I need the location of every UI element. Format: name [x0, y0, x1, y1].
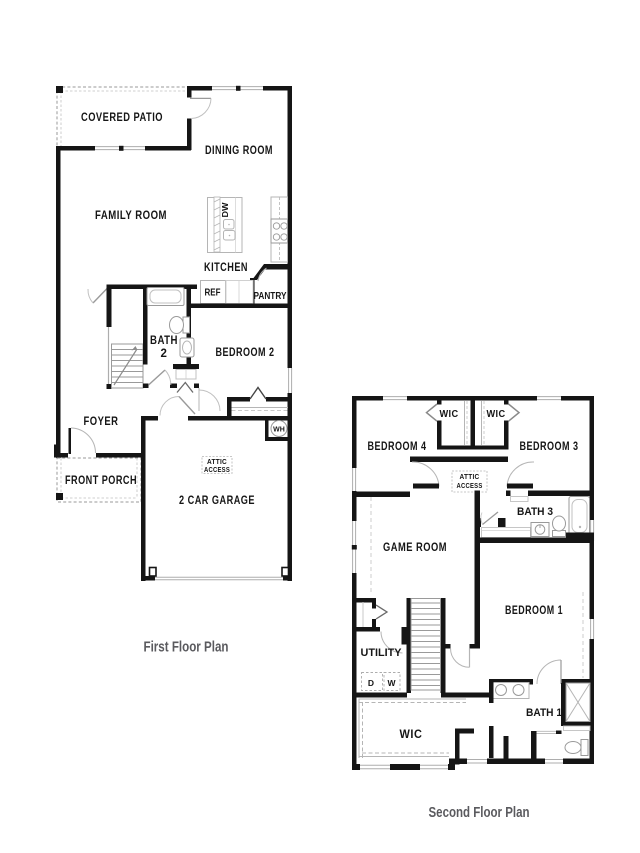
svg-text:DW: DW	[220, 201, 230, 217]
svg-text:PANTRY: PANTRY	[254, 290, 287, 302]
svg-text:WIC: WIC	[440, 409, 459, 420]
svg-text:BATH 3: BATH 3	[517, 506, 553, 518]
svg-text:GAME ROOM: GAME ROOM	[383, 542, 447, 554]
svg-text:ACCESS: ACCESS	[204, 465, 230, 474]
svg-text:BATH: BATH	[150, 335, 178, 347]
svg-text:2: 2	[161, 348, 168, 360]
svg-text:FOYER: FOYER	[84, 416, 119, 428]
svg-text:UTILITY: UTILITY	[361, 647, 403, 659]
svg-text:WIC: WIC	[400, 729, 423, 741]
svg-text:KITCHEN: KITCHEN	[204, 262, 248, 274]
svg-text:FAMILY ROOM: FAMILY ROOM	[95, 210, 167, 222]
svg-text:BEDROOM 4: BEDROOM 4	[368, 441, 427, 453]
svg-text:WIC: WIC	[487, 409, 506, 420]
svg-text:BEDROOM 1: BEDROOM 1	[505, 605, 563, 617]
svg-text:ACCESS: ACCESS	[457, 481, 483, 490]
svg-text:DINING ROOM: DINING ROOM	[205, 145, 273, 157]
svg-text:BEDROOM 2: BEDROOM 2	[216, 347, 275, 359]
svg-text:ATTIC: ATTIC	[460, 472, 480, 481]
svg-text:First Floor Plan: First Floor Plan	[144, 639, 229, 656]
svg-text:2 CAR GARAGE: 2 CAR GARAGE	[179, 495, 255, 507]
svg-text:D: D	[368, 678, 374, 688]
svg-text:W: W	[387, 678, 396, 688]
svg-text:Second Floor Plan: Second Floor Plan	[429, 804, 530, 821]
svg-text:BEDROOM 3: BEDROOM 3	[520, 441, 579, 453]
svg-text:BATH 1: BATH 1	[526, 707, 562, 719]
svg-text:COVERED PATIO: COVERED PATIO	[81, 112, 163, 124]
svg-text:FRONT PORCH: FRONT PORCH	[65, 475, 137, 487]
svg-text:REF: REF	[205, 288, 221, 299]
svg-text:WH: WH	[273, 427, 285, 434]
